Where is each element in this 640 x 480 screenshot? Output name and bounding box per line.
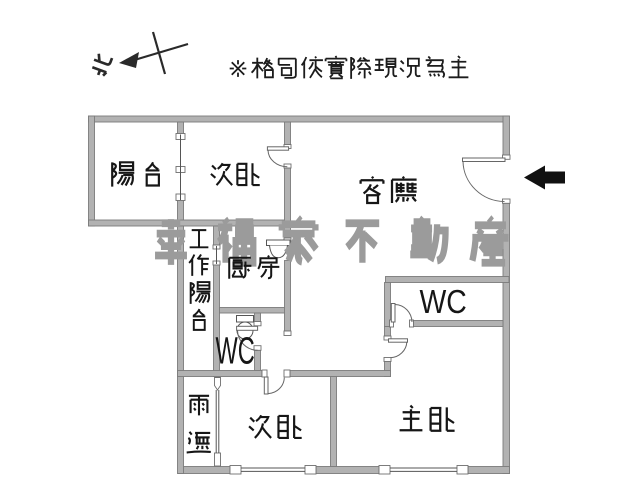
svg-text:WC: WC — [420, 283, 467, 321]
svg-text:WC: WC — [216, 329, 255, 372]
